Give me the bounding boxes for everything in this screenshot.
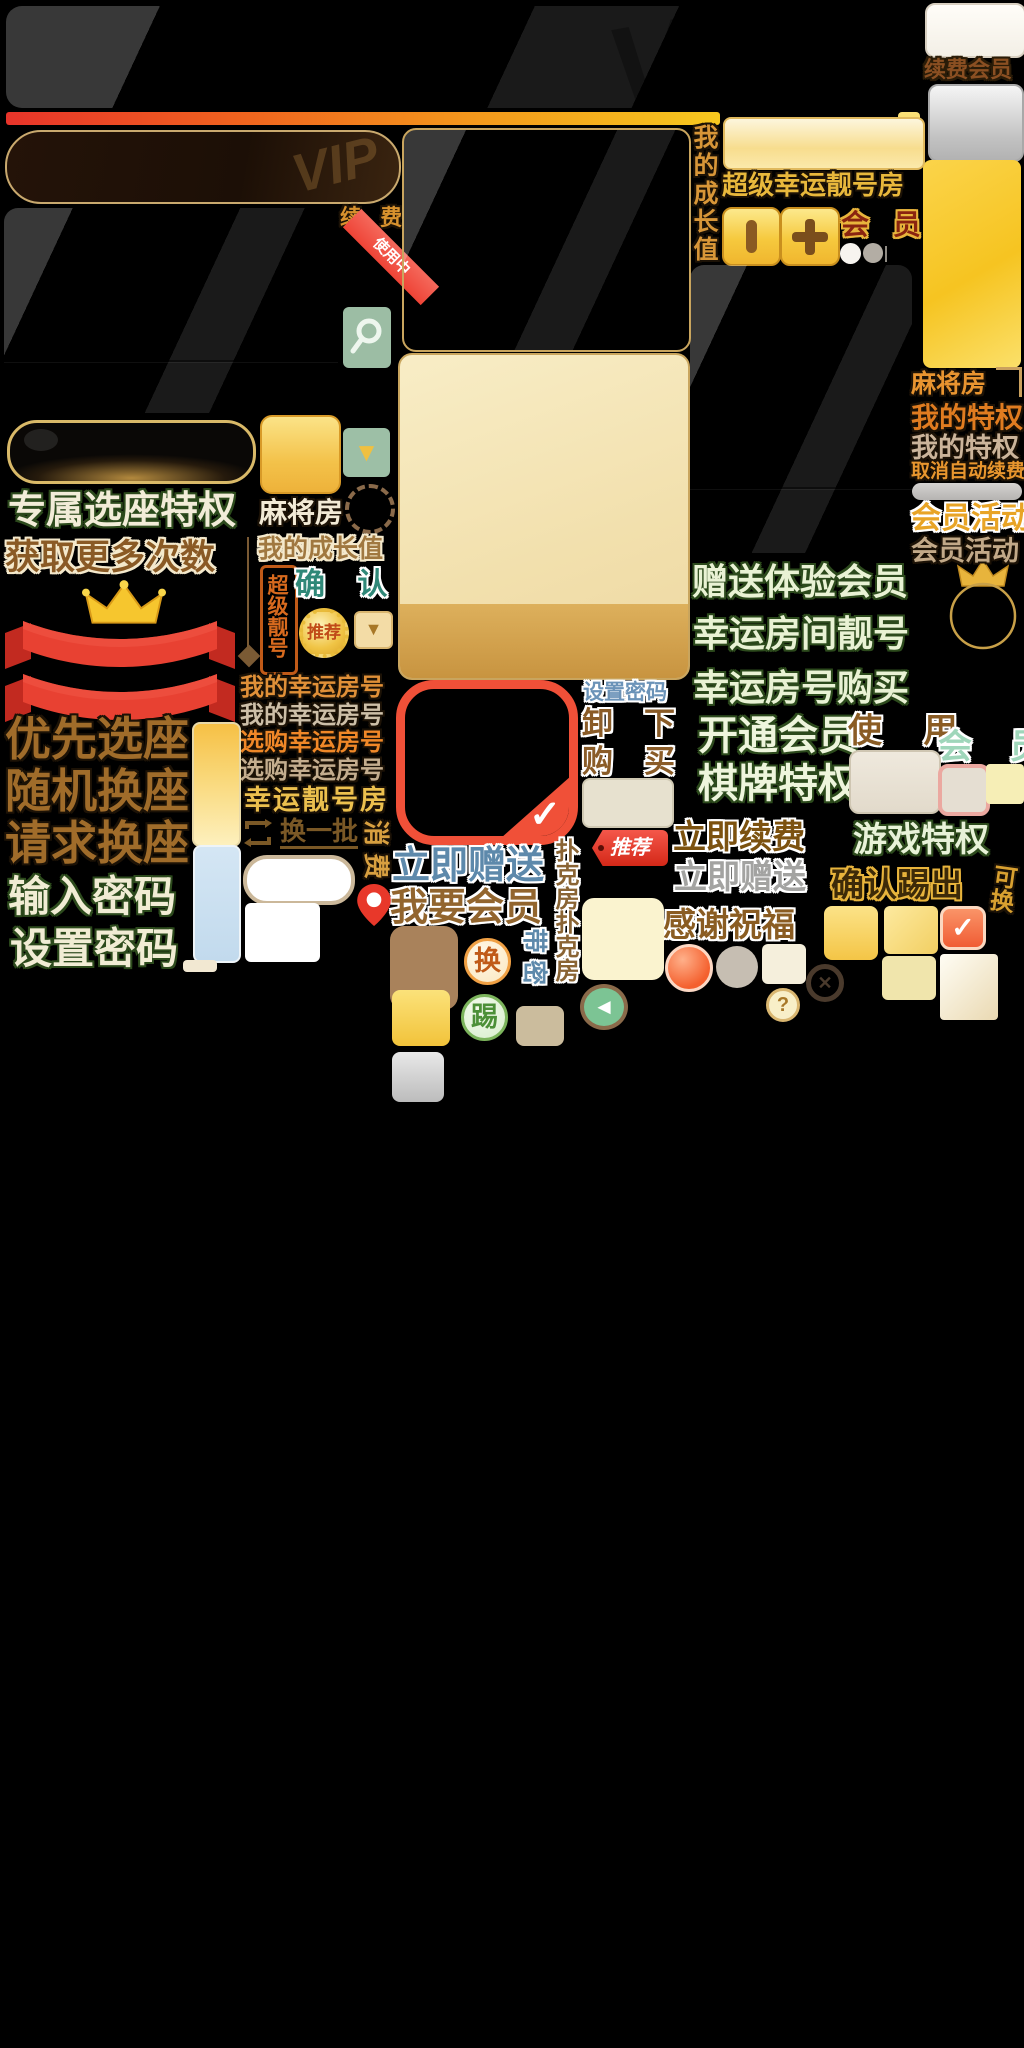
recommend-badge: 推荐	[299, 608, 349, 658]
check-button[interactable]: ✓	[940, 906, 986, 950]
check-icon: ✓	[529, 796, 561, 834]
member-activity-beige-label[interactable]: 会员活动	[911, 538, 1019, 565]
super-lucky-room-label: 超级幸运靓号房	[722, 172, 904, 198]
cream-square-small	[762, 944, 806, 984]
confirm-label[interactable]: 确 认	[295, 570, 399, 600]
chess-privilege-label: 棋牌特权	[698, 764, 858, 804]
diamond-end	[238, 645, 261, 668]
gold-square-button[interactable]	[260, 415, 341, 494]
dashed-circle	[345, 484, 395, 534]
back-button[interactable]: ◄	[580, 984, 628, 1030]
set-password-blue-label: 设置密码	[583, 682, 667, 703]
member-activity-gold-label[interactable]: 会员活动	[911, 504, 1024, 534]
gradient-progress-bar	[6, 112, 720, 125]
question-button[interactable]: ?	[766, 988, 800, 1022]
refresh-icon[interactable]	[243, 819, 273, 847]
want-member-label[interactable]: 我要会员	[390, 889, 542, 927]
left-dark-panel	[4, 208, 338, 413]
pill-highlight	[24, 429, 58, 451]
location-pin-icon	[357, 884, 391, 926]
gold-square-right-2	[884, 906, 938, 954]
gold-panel-bottom-strip	[400, 604, 688, 678]
page-tick	[885, 246, 887, 262]
set-password-green-label: 设置密码	[10, 928, 178, 970]
kick-char-label: 踢	[471, 1002, 498, 1032]
corner-bracket-v	[1019, 367, 1022, 397]
gold-panel-top	[402, 128, 691, 352]
back-arrow-icon: ◄	[593, 994, 615, 1019]
rotated-blue-char-1: 带	[521, 928, 546, 953]
silver-square-bottom	[392, 1052, 444, 1102]
request-swap-seat-label: 请求换座	[5, 820, 189, 866]
beige-wide-button[interactable]	[582, 778, 674, 828]
my-lucky-room-label-1: 我的幸运房号	[240, 676, 384, 700]
plus-icon-v	[805, 219, 815, 255]
dropdown-arrow-icon: ▼	[365, 619, 383, 639]
khaki-square	[516, 1006, 564, 1046]
search-button[interactable]	[343, 307, 391, 368]
priority-seat-label: 优先选座	[5, 716, 189, 762]
rotated-gold-char-1: 消	[363, 820, 389, 846]
gold-vertical-bar	[192, 722, 241, 847]
mahjong-room-left-label: 麻将房	[259, 499, 343, 527]
sparkle-pill	[7, 420, 256, 484]
taupe-circle	[716, 946, 758, 988]
gold-square-bottom	[392, 990, 450, 1046]
my-lucky-room-label-2: 我的幸运房号	[240, 704, 384, 728]
close-button[interactable]: ✕	[806, 964, 844, 1002]
rotated-gold-char-2: 费	[363, 853, 389, 879]
purchase-char-a: 购	[582, 746, 613, 777]
my-privilege-beige-label[interactable]: 我的特权	[911, 435, 1019, 462]
question-icon: ?	[777, 994, 789, 1016]
panel-divider	[4, 360, 338, 362]
rotated-blue-char-2: 密	[521, 960, 546, 985]
member-red-label: 会 员	[841, 211, 929, 239]
exclusive-seat-label: 专属选座特权	[8, 492, 236, 530]
white-pill-input[interactable]	[243, 855, 355, 905]
lucky-number-room-label: 幸运靓号房	[244, 787, 389, 814]
super-number-label: 超级靓号	[266, 574, 287, 658]
right-dark-panel	[690, 265, 912, 553]
dropdown-arrow-icon: ▼	[354, 437, 380, 467]
recommend-tag-dot	[598, 845, 604, 851]
super-lucky-room-button[interactable]	[723, 117, 925, 170]
gold-square-right-1	[824, 906, 878, 960]
give-now-silver-label[interactable]: 立即赠送	[674, 860, 806, 893]
crown-ring-icon	[948, 554, 1018, 654]
open-member-label[interactable]: 开通会员	[698, 716, 858, 756]
gift-trial-member-label: 赠送体验会员	[692, 564, 908, 600]
mahjong-room-gold-label: 麻将房	[911, 372, 986, 397]
enter-password-label: 输入密码	[8, 876, 176, 918]
uninstall-char-a: 卸	[582, 708, 613, 739]
top-banner-panel: VIP	[6, 6, 920, 108]
buy-lucky-room-label-2: 选购幸运房号	[240, 759, 384, 783]
page-dot-active[interactable]	[840, 243, 861, 264]
vertical-divider	[247, 537, 249, 647]
my-privilege-orange-label[interactable]: 我的特权	[911, 404, 1023, 432]
sprite-atlas-canvas: VIP 续费会员 VIP 我的成长值 超级幸运靓号房 会 员 续 费 使用中	[0, 0, 1024, 2048]
pink-border-square[interactable]	[938, 764, 990, 816]
recommend-tag-label: 推荐	[610, 837, 650, 859]
silver-button[interactable]	[928, 84, 1024, 162]
game-privilege-label: 游戏特权	[853, 823, 989, 857]
lucky-room-number-label: 幸运房间靓号	[693, 616, 909, 652]
swap-char-label: 换	[474, 946, 501, 976]
vip-pill-watermark: VIP	[287, 130, 385, 202]
random-swap-seat-label: 随机换座	[5, 768, 189, 814]
renew-now-label[interactable]: 立即续费	[673, 820, 805, 853]
recommend-badge-label: 推荐	[307, 623, 341, 642]
check-icon: ✓	[951, 912, 974, 943]
pale-yellow-square-2	[882, 956, 936, 1000]
lucky-number-buy-label: 幸运房号购买	[693, 670, 909, 706]
expand-plus-button[interactable]	[780, 207, 840, 266]
renew-member-label[interactable]: 续费会员	[924, 59, 1012, 81]
beige-big-button[interactable]	[849, 750, 941, 814]
change-batch-label[interactable]: 换一批	[280, 818, 358, 849]
growth-value-label: 我的成长值	[258, 537, 383, 562]
blue-vertical-bar	[193, 845, 241, 963]
kick-button[interactable]: 踢	[461, 994, 508, 1041]
gold-panel-bottom	[398, 353, 690, 680]
renew-member-button[interactable]	[925, 3, 1024, 58]
pale-yellow-square	[582, 898, 664, 980]
close-x-icon: ✕	[817, 973, 832, 993]
thanks-blessing-label: 感谢祝福	[663, 908, 795, 941]
confirm-kick-label[interactable]: 确认踢出	[831, 868, 963, 901]
silver-pill	[912, 483, 1022, 500]
dropdown-tan-button[interactable]: ▼	[354, 611, 393, 649]
red-ribbon-banner	[5, 619, 235, 673]
orange-sphere[interactable]	[665, 944, 713, 992]
vip-pill-banner: VIP	[5, 130, 401, 204]
collapse-bar-button[interactable]	[722, 207, 781, 266]
give-now-blue-label[interactable]: 立即赠送	[392, 847, 544, 885]
white-tall-rect	[245, 903, 320, 962]
cream-small-rect	[183, 960, 217, 972]
swap-button[interactable]: 换	[464, 938, 511, 985]
panel-divider	[690, 487, 912, 489]
selected-frame[interactable]: ✓	[396, 680, 578, 845]
page-dot-inactive[interactable]	[863, 243, 883, 263]
search-icon	[350, 318, 384, 356]
uninstall-char-b: 下	[644, 708, 675, 739]
buy-lucky-room-label-1: 选购幸运房号	[240, 731, 384, 755]
purchase-char-b: 买	[644, 746, 675, 777]
member-mint-label: 会 员	[938, 730, 1024, 764]
cancel-auto-renew-label[interactable]: 取消自动续费	[911, 462, 1024, 481]
bar-icon	[746, 220, 757, 253]
can-swap-vertical-label: 可换	[984, 863, 1016, 922]
dropdown-green-button[interactable]: ▼	[343, 428, 390, 477]
growth-value-vertical-label: 我的成长值	[691, 124, 716, 274]
yellow-square-small	[986, 764, 1024, 804]
get-more-times-label: 获取更多次数	[5, 540, 215, 575]
gold-panel-right	[923, 160, 1021, 368]
cream-gradient-square	[940, 954, 998, 1020]
poker-room-vertical-label: 扑克房扑克房	[552, 838, 576, 1010]
super-number-tag[interactable]: 超级靓号	[260, 565, 298, 675]
